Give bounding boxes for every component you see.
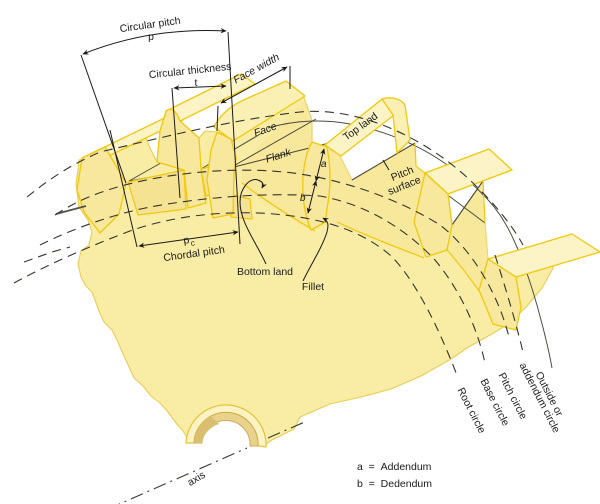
svg-text:Bottom land: Bottom land xyxy=(237,266,293,278)
svg-text:a = Addendum: a = Addendum xyxy=(357,461,432,473)
svg-text:t: t xyxy=(195,77,198,89)
svg-text:Circular thickness: Circular thickness xyxy=(148,61,232,82)
svg-text:b = Dedendum: b = Dedendum xyxy=(357,478,432,490)
svg-text:Face width: Face width xyxy=(231,51,281,86)
svg-text:axis: axis xyxy=(185,469,207,489)
svg-text:a: a xyxy=(321,159,327,170)
svg-text:Root circle: Root circle xyxy=(455,386,488,436)
svg-text:b: b xyxy=(300,193,306,204)
svg-text:Fillet: Fillet xyxy=(302,281,324,293)
svg-text:p: p xyxy=(148,31,154,43)
